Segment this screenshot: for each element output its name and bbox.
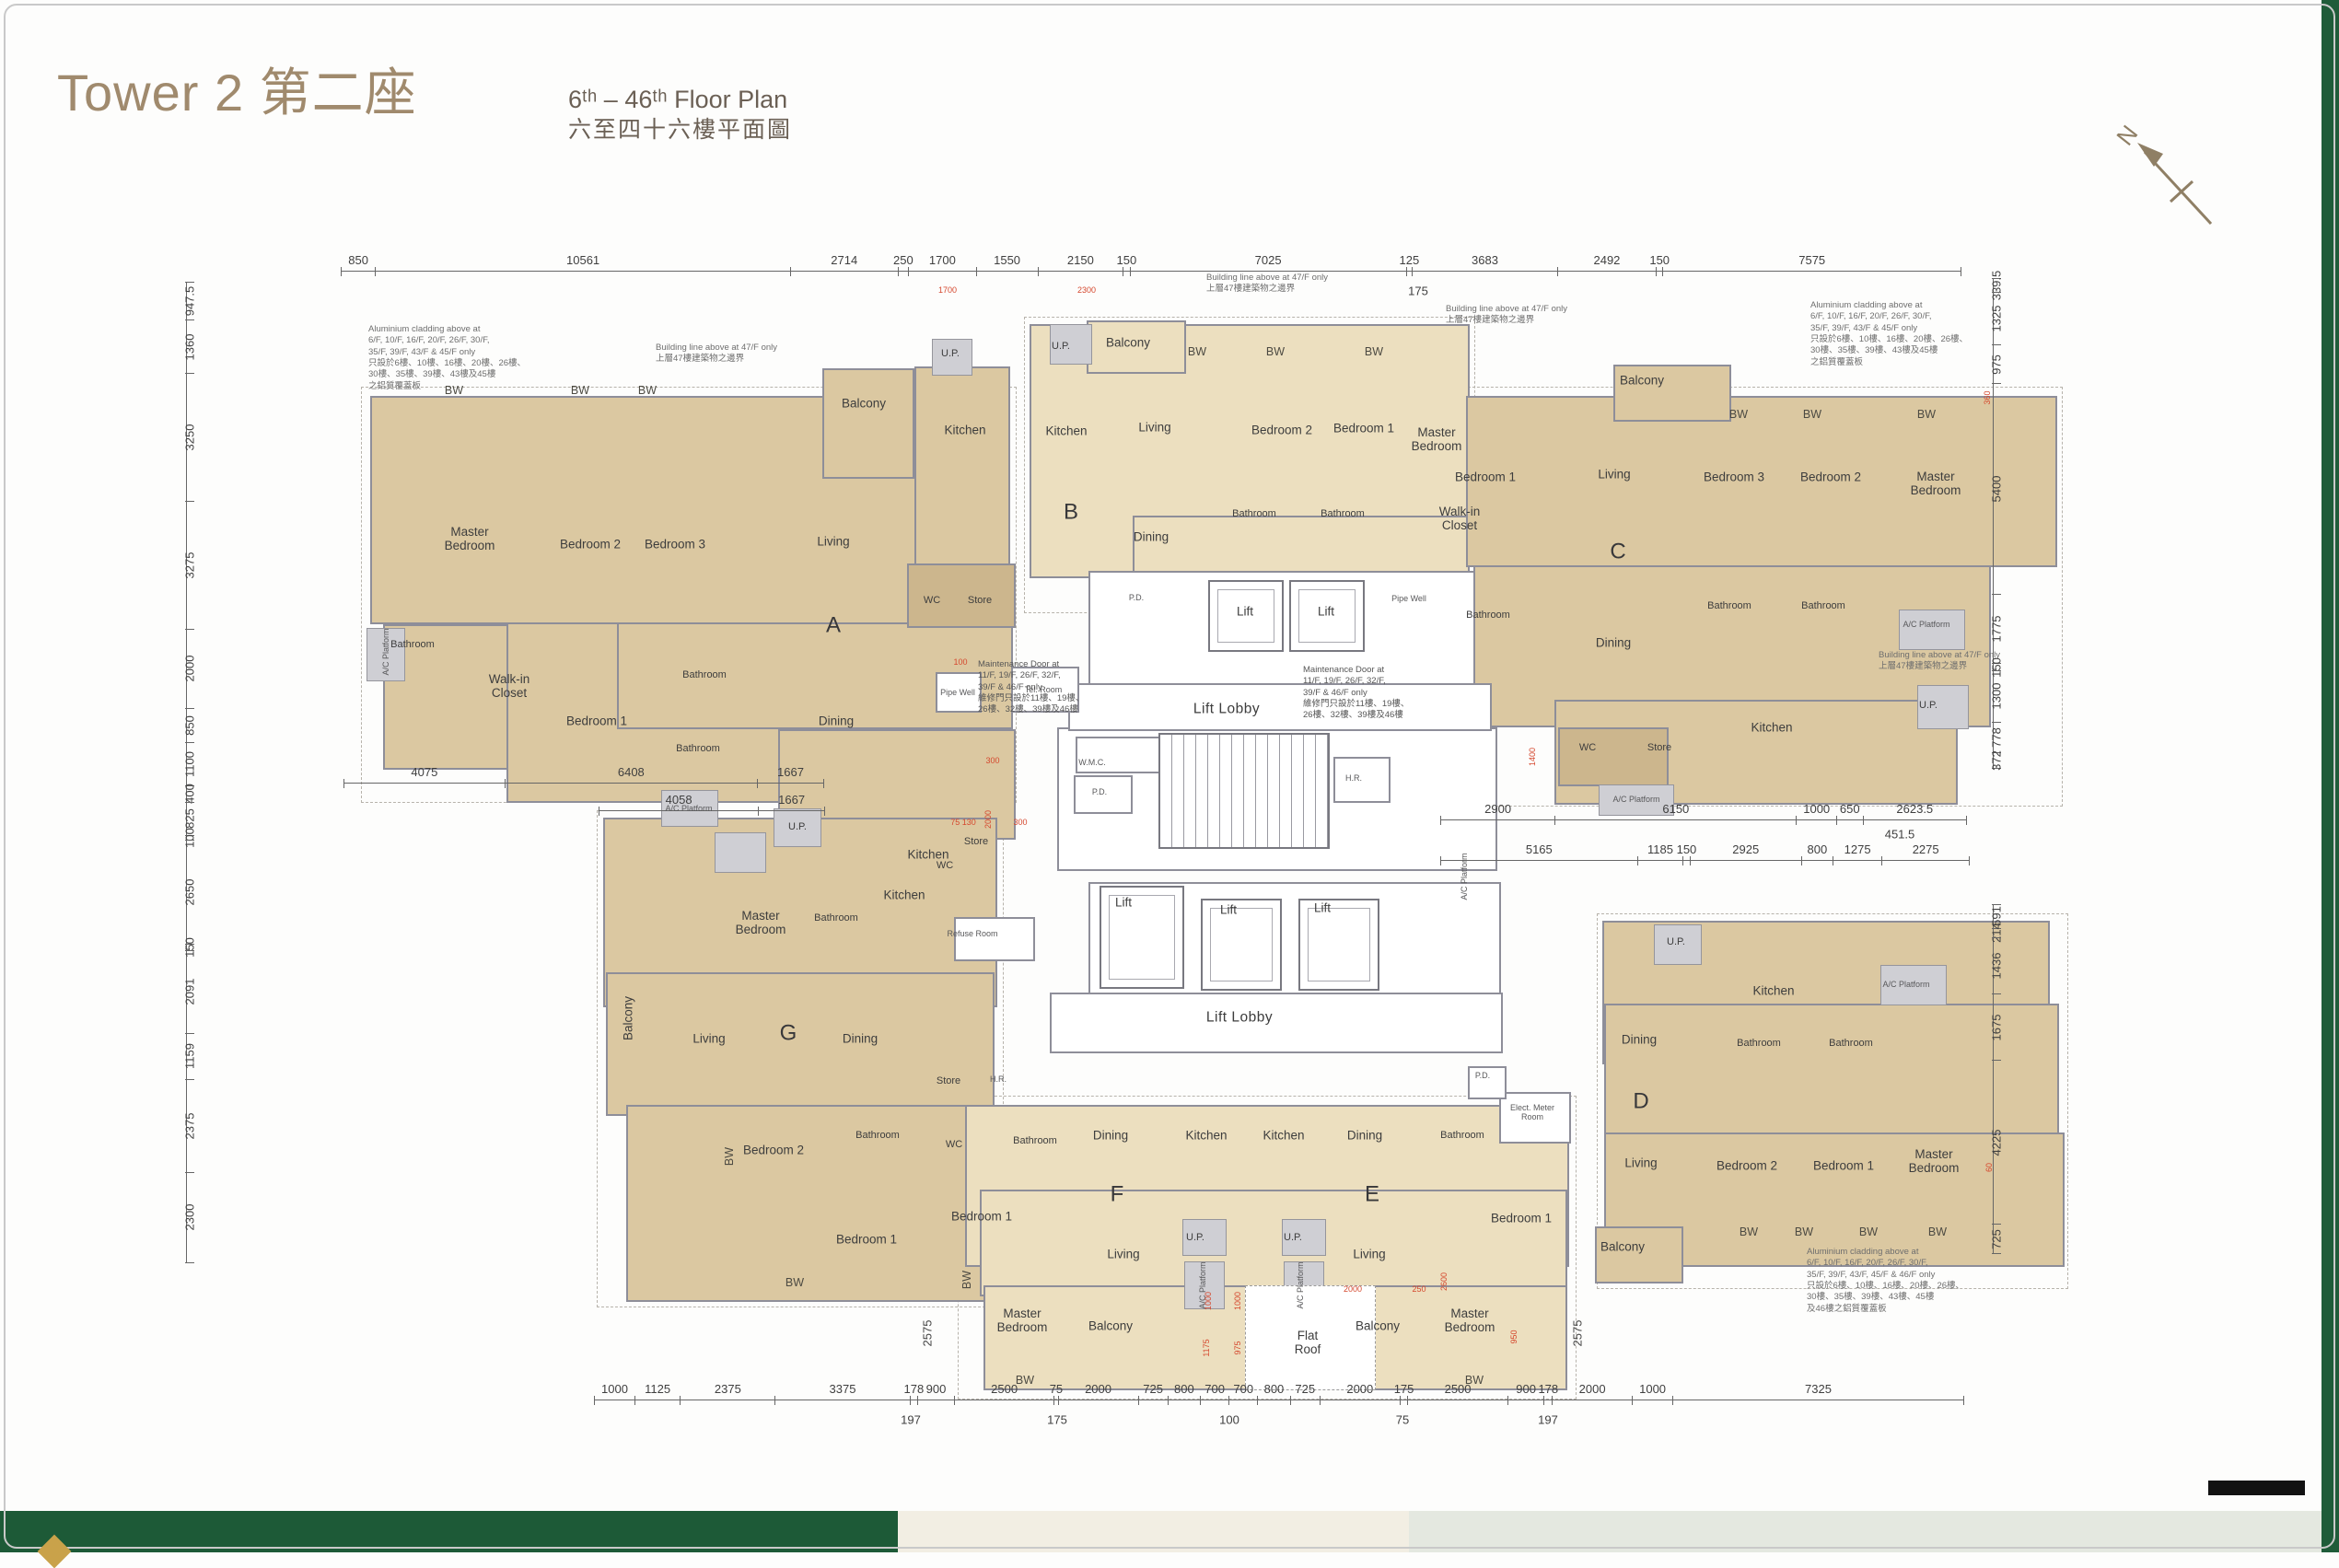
unit-f-label: F [1111,1183,1124,1208]
unit-a-label: A [826,614,841,639]
bedroom-1-label: Bedroom 1 [1491,1211,1552,1225]
note-line: 上層47樓建築物之邊界 [656,354,777,365]
dimension-label: 3683 [1472,253,1498,267]
dimension-segment: 850 [185,708,194,742]
bedroom-2-label: Bedroom 2 [743,1143,804,1156]
note-line: 只設於6樓、10樓、16樓、20樓、26樓、 [1810,334,1968,345]
bay-window-label: BW [1803,408,1821,421]
dimension-label: 2650 [182,878,196,905]
dimension-segment: 2623.5 [1863,816,1966,825]
maintenance-door-note: Maintenance Door at11/F, 19/F, 26/F, 32/… [978,659,1084,716]
balcony-label: Balcony [842,396,886,410]
bay-window-label: BW [1465,1374,1484,1387]
store-label: Store [968,595,992,606]
dimension-label: 5400 [1989,475,2003,502]
balcony-label: Balcony [1620,373,1664,387]
wc-label: WC [937,860,953,871]
dimension-label: 1700 [929,253,956,267]
dining-label: Dining [843,1031,878,1045]
dimension-chain-top: 8501056127142501700155021501507025125368… [341,254,1961,276]
dimension-label: 975 [1989,354,2003,375]
dimension-label: 1185 [1647,842,1673,856]
aluminium-cladding-note: Aluminium cladding above at6/F, 10/F, 16… [1807,1247,1964,1315]
u-p-label: U.P. [941,348,960,359]
aluminium-cladding-note: Aluminium cladding above at6/F, 10/F, 16… [1810,300,1968,368]
red-dimension-label: 975 [1233,1341,1242,1354]
living-label: Living [692,1031,725,1045]
dining-label: Dining [1622,1032,1657,1046]
dimension-label: 2575 [921,1320,935,1347]
dimension-label: 75 [1050,1382,1063,1396]
lift-label: Lift [1115,895,1132,909]
master-bedroom-label: Master Bedroom [1445,1307,1495,1334]
bedroom-3-label: Bedroom 3 [645,537,705,551]
elect-meter-room-label: Elect. Meter Room [1510,1103,1554,1121]
note-line: 35/F, 39/F, 43/F & 45/F only [1810,323,1968,334]
balcony-label: Balcony [1356,1318,1400,1332]
dimension-segment: 2375 [185,1079,194,1172]
service-room [954,917,1035,961]
note-line: Maintenance Door at [978,659,1084,670]
dimension-label: 800 [1174,1382,1194,1396]
dimension-label: 800 [1264,1382,1285,1396]
red-dimension-label: 1400 [1528,748,1537,766]
dimension-segment: 3683 [1412,267,1557,276]
bay-window-label: BW [723,1147,736,1166]
dimension-label: 175 [1047,1413,1067,1427]
dimension-label: 900 [1516,1382,1536,1396]
dimension-label: 197 [1538,1413,1558,1427]
dimension-segment: 2150 [1038,267,1123,276]
dimension-segment: 800 [1168,1396,1200,1405]
master-bedroom-label: Master Bedroom [736,909,786,936]
dimension-label: 2000 [1085,1382,1111,1396]
bay-window-label: BW [1928,1225,1947,1238]
dimension-label: 6408 [618,765,645,779]
balcony-label: Balcony [1088,1318,1133,1332]
u-p-label: U.P. [1186,1232,1204,1243]
dimension-label: 1436 [1989,953,2003,980]
dimension-label: 1125 [645,1382,670,1396]
dimension-label: 372 [1989,750,2003,771]
dimension-segment: 150 [1682,856,1689,865]
bathroom-label: Bathroom [1013,1135,1057,1146]
u-p-label: U.P. [1667,936,1685,947]
dimension-segment: 339.5 [1992,278,2001,292]
dimension-segment: 10561 [375,267,790,276]
living-label: Living [817,534,849,548]
dimension-label: 700 [1204,1382,1225,1396]
bathroom-label: Bathroom [390,639,435,650]
dimension-segment: 372 [1992,752,2001,768]
dimension-label: 650 [1840,802,1860,816]
p-d-label: P.D. [1092,787,1107,796]
note-line: Building line above at 47/F only [1879,650,2000,661]
unit-d-label: D [1633,1090,1648,1115]
dimension-segment: 2000 [185,629,194,707]
service-room [1333,757,1391,803]
dimension-segment: 3250 [185,373,194,500]
note-line: 39/F & 46/F only [978,682,1084,693]
dimension-label: 947.5 [182,286,196,317]
bedroom-1-label: Bedroom 1 [1813,1158,1874,1172]
a-c-platform-label: A/C Platform [1296,1261,1305,1308]
red-dimension-label: 1000 [1204,1292,1213,1310]
dimension-segment: 800 [1257,1396,1289,1405]
dimension-label: 725 [1295,1382,1315,1396]
dimension-label: 4075 [411,765,437,779]
footer-bar-right [1409,1511,2339,1552]
dining-label: Dining [1093,1128,1128,1142]
bathroom-label: Bathroom [1737,1038,1781,1049]
dimension-segment: 7575 [1662,267,1961,276]
dimension-segment: 1325 [1992,292,2001,344]
bedroom-1-label: Bedroom 1 [1333,421,1394,435]
dimension-label: 2150 [1067,253,1094,267]
building-line-note: Building line above at 47/F only上層47樓建築物… [656,343,777,366]
balcony-label: Balcony [1600,1239,1645,1253]
bathroom-label: Bathroom [814,912,858,923]
dimension-segment: 1300 [1992,670,2001,722]
dimension-segment: 1360 [185,319,194,373]
lift-label: Lift [1318,604,1334,618]
dimension-segment: 175 [1400,1396,1408,1405]
p-d-label: P.D. [1475,1071,1490,1080]
kitchen-label: Kitchen [944,423,985,436]
dimension-segment: 2500 [954,1396,1053,1405]
dimension-segment: 975 [1992,344,2001,383]
bay-window-label: BW [1917,408,1936,421]
dimension-segment: 2275 [1881,856,1969,865]
a-c-platform-label: A/C Platform [1903,620,1949,629]
dimension-tick [1961,267,1961,276]
dimension-label: 2000 [182,656,196,682]
a-c-platform-label: A/C Platform [1612,795,1659,804]
dimension-label: 1360 [182,333,196,360]
note-line: 11/F, 19/F, 26/F, 32/F, [978,670,1084,681]
bedroom-1-label: Bedroom 1 [1455,470,1516,483]
dining-label: Dining [1347,1128,1382,1142]
store-area [1558,727,1669,786]
dimension-label: 1159 [182,1043,196,1069]
bathroom-label: Bathroom [1440,1130,1484,1141]
dimension-label: 1300 [1989,683,2003,710]
dimension-label: 2575 [1571,1320,1585,1347]
note-line: 30樓、35樓、39樓、43樓、45樓 [1807,1292,1964,1303]
dimension-label: 1667 [778,793,805,807]
note-line: 35/F, 39/F, 43/F & 45/F only [368,347,526,358]
note-line: Building line above at 47/F only [656,343,777,354]
dimension-segment: 3275 [185,501,194,629]
dimension-segment: 1185 [1637,856,1683,865]
dimension-segment: 1000 [1632,1396,1672,1405]
dimension-label: 778 [1989,727,2003,748]
bay-window-label: BW [1740,1225,1758,1238]
dimension-segment: 4075 [343,779,505,788]
bay-window-label: BW [1795,1225,1813,1238]
dimension-segment: 2714 [790,267,898,276]
dimension-label: 1775 [1989,616,2003,643]
note-line: Building line above at 47/F only [1446,304,1567,315]
dimension-segment: 400 [185,785,194,802]
dimension-label: 1675 [1989,1014,2003,1040]
dimension-segment: 2091 [185,950,194,1032]
dimension-label: 1000 [1639,1382,1666,1396]
bay-window-label: BW [1188,345,1206,358]
dimension-label: 4225 [1989,1129,2003,1156]
scale-bar [2208,1481,2305,1495]
platform-area [1899,610,1965,650]
dimension-segment: 150 [1656,267,1662,276]
unit-c-label: C [1610,540,1625,565]
lift-shaft [1201,899,1282,991]
bathroom-label: Bathroom [1232,508,1276,519]
dimension-label: 2900 [1484,802,1511,816]
master-bedroom-label: Master Bedroom [445,525,495,552]
living-label: Living [1624,1156,1657,1169]
bedroom-2-label: Bedroom 2 [1716,1158,1777,1172]
living-label: Living [1107,1247,1139,1260]
dimension-tick [824,807,825,816]
note-line: 及46樓之鋁質覆蓋板 [1807,1304,1964,1315]
store-label: Store [964,836,988,847]
dimension-label: 178 [903,1382,924,1396]
note-line: 6/F, 10/F, 16/F, 20/F, 26/F, 30/F, [368,335,526,346]
note-line: 6/F, 10/F, 16/F, 20/F, 26/F, 30/F, [1807,1258,1964,1269]
dimension-segment: 2000 [1552,1396,1632,1405]
lift-lobby-label: Lift Lobby [1206,1009,1273,1025]
dimension-chain-right-upper: 339.51325975540017751501300778372 [1982,278,2004,769]
dimension-segment: 250 [898,267,909,276]
lift-shaft [1100,886,1184,989]
lift-lobby-label: Lift Lobby [1193,701,1260,716]
note-line: Maintenance Door at [1303,665,1409,676]
red-dimension-label: 1000 [1233,1292,1242,1310]
dimension-segment: 1700 [908,267,975,276]
dimension-label: 1550 [994,253,1020,267]
kitchen-label: Kitchen [1263,1128,1304,1142]
a-c-platform-label: A/C Platform [665,804,712,813]
lift-label: Lift [1220,902,1237,916]
dimension-segment: 1667 [757,779,823,788]
dimension-chain-mid-right-2: 51651185150292580012752275 [1440,843,1970,865]
dimension-segment: 725 [1138,1396,1168,1405]
dimension-label: 1100 [182,751,196,777]
dimension-label: 2623.5 [1896,802,1933,816]
footer-bar-middle [898,1511,1409,1552]
note-line: 26樓、32樓、39樓及46樓 [1303,710,1409,721]
dimension-label: 7325 [1805,1382,1832,1396]
dimension-label: 3275 [182,552,196,578]
dimension-segment: 1550 [976,267,1038,276]
note-line: Building line above at 47/F only [1206,273,1328,284]
dimension-label: 825 [182,808,196,829]
note-line: 30樓、35樓、39樓、43樓及45樓 [368,369,526,380]
maintenance-door-note: Maintenance Door at11/F, 19/F, 26/F, 32/… [1303,665,1409,722]
dining-label: Dining [819,714,854,727]
dimension-label: 1325 [1989,306,2003,332]
dimension-label: 100 [1219,1413,1239,1427]
unit-area [1595,1226,1683,1283]
dimension-label: 10561 [566,253,599,267]
red-dimension-label: 2300 [1077,285,1096,295]
dimension-segment: 2492 [1557,267,1656,276]
dimension-segment: 900 [917,1396,954,1405]
dimension-segment: 1667 [758,807,824,816]
bathroom-label: Bathroom [855,1130,900,1141]
red-dimension-label: 2000 [983,810,993,829]
red-dimension-label: 100 [953,657,967,667]
note-line: 只設於6樓、10樓、16樓、20樓、26樓、 [1807,1281,1964,1292]
bedroom-1-label: Bedroom 1 [566,714,627,727]
unit-area [822,368,914,479]
dimension-label: 2375 [715,1382,741,1396]
dimension-label: 2492 [1593,253,1620,267]
walk-in-closet-label: Walk-in Closet [1439,505,1481,532]
note-line: 維修門只設於11樓、19樓、 [978,693,1084,704]
lift-label: Lift [1314,900,1331,914]
master-bedroom-label: Master Bedroom [1911,470,1961,497]
flat-roof-label: Flat Roof [1295,1329,1321,1356]
note-line: Aluminium cladding above at [368,324,526,335]
dimension-segment: 1100 [185,742,194,785]
footer-bar-left [0,1511,898,1552]
staircase [1158,733,1330,849]
note-line: 6/F, 10/F, 16/F, 20/F, 26/F, 30/F, [1810,311,1968,322]
red-dimension-label: 950 [1509,1330,1519,1343]
dining-label: Dining [1596,635,1631,649]
dimension-chain-mid-right-1: 2900615010006502623.5 [1440,803,1967,825]
dimension-segment: 214 [1992,928,2001,937]
dimension-segment: 178 [1543,1396,1552,1405]
dimension-segment: 725 [1290,1396,1320,1405]
bathroom-label: Bathroom [682,669,727,680]
note-line: 上層47樓建築物之邊界 [1879,661,2000,672]
dimension-segment: 850 [341,267,375,276]
aluminium-cladding-note: Aluminium cladding above at6/F, 10/F, 16… [368,324,526,392]
dimension-label: 125 [1400,253,1420,267]
bathroom-label: Bathroom [1466,610,1510,621]
kitchen-label: Kitchen [1185,1128,1227,1142]
red-dimension-label: 360 [1983,390,1992,404]
u-p-label: U.P. [1052,341,1070,352]
dimension-label: 2000 [1346,1382,1373,1396]
dimension-label: 150 [1649,253,1670,267]
walk-in-closet-label: Walk-in Closet [489,672,530,700]
dimension-label: 2500 [991,1382,1018,1396]
u-p-label: U.P. [788,821,807,832]
living-label: Living [1353,1247,1385,1260]
bathroom-label: Bathroom [1707,600,1751,611]
note-line: 39/F & 46/F only [1303,688,1409,699]
dimension-chain-mid-left-1: 407564081667 [343,766,824,788]
dimension-segment: 2900 [1440,816,1554,825]
dimension-label: 150 [1677,842,1697,856]
dimension-segment: 700 [1200,1396,1228,1405]
dimension-label: 3375 [830,1382,856,1396]
wc-label: WC [946,1139,962,1150]
dimension-label: 2275 [1913,842,1939,856]
unit-e-label: E [1365,1183,1379,1208]
note-line: 11/F, 19/F, 26/F, 32/F, [1303,676,1409,687]
floor-plan-drawing: BWBWBWMaster BedroomBedroom 2Bedroom 3Li… [0,0,2339,1552]
unit-area [606,972,995,1116]
kitchen-label: Kitchen [1751,720,1792,734]
living-label: Living [1138,420,1170,434]
dimension-chain-bottom: 1000112523753375178900250075200072580070… [594,1383,1964,1405]
dimension-tick [823,779,824,788]
note-line: 上層47樓建築物之邊界 [1206,284,1328,295]
bay-window-label: BW [785,1276,804,1289]
dimension-segment: 2000 [1058,1396,1138,1405]
dimension-segment: 2300 [185,1172,194,1262]
dimension-segment: 900 [1507,1396,1544,1405]
note-line: 30樓、35樓、39樓、43樓及45樓 [1810,345,1968,356]
dimension-label: 7025 [1255,253,1282,267]
red-dimension-label: 300 [985,756,999,765]
master-bedroom-label: Master Bedroom [1909,1147,1960,1175]
dimension-segment: 3375 [774,1396,909,1405]
dimension-label: 178 [1538,1382,1558,1396]
dimension-segment: 650 [1836,816,1863,825]
dimension-label: 2091 [182,979,196,1005]
dimension-label: 700 [1233,1382,1253,1396]
dimension-label: 3250 [182,424,196,451]
bay-window-label: BW [1016,1374,1034,1387]
dimension-segment: 5400 [1992,383,2001,593]
red-dimension-label: 2600 [1439,1272,1449,1291]
h-r-label: H.R. [990,1074,1007,1084]
dimension-segment: 1675 [1992,993,2001,1059]
dimension-segment: 2375 [680,1396,774,1405]
u-p-label: U.P. [1284,1232,1302,1243]
dimension-label: 451.5 [1885,828,1915,842]
bathroom-label: Bathroom [1829,1038,1873,1049]
red-dimension-label: 250 [1412,1284,1426,1294]
dimension-segment: 2000 [1320,1396,1400,1405]
dimension-segment: 1000 [1796,816,1835,825]
dimension-segment: 2925 [1690,856,1801,865]
note-line: 26樓、32樓、39樓及46樓 [978,704,1084,715]
red-dimension-label: 300 [1013,818,1027,827]
bathroom-label: Bathroom [1801,600,1845,611]
dimension-label: 1000 [1803,802,1830,816]
dimension-segment: 1159 [185,1033,194,1079]
dimension-segment: 6150 [1554,816,1796,825]
red-dimension-label: 2000 [1344,1284,1362,1294]
dimension-label: 1667 [777,765,804,779]
dimension-label: 150 [1116,253,1136,267]
a-c-platform-label: A/C Platform [1882,980,1929,989]
a-c-platform-label: A/C Platform [381,628,390,675]
bedroom-2-label: Bedroom 2 [1251,423,1312,436]
dimension-label: 900 [926,1382,947,1396]
dimension-label: 2714 [831,253,857,267]
dimension-label: 7575 [1798,253,1825,267]
dimension-segment: 7325 [1672,1396,1963,1405]
a-c-platform-label: A/C Platform [1460,853,1469,900]
bathroom-label: Bathroom [1321,508,1365,519]
kitchen-label: Kitchen [1045,424,1087,437]
bay-window-label: BW [1365,345,1383,358]
dimension-label: 175 [1408,285,1428,298]
bay-window-label: BW [1859,1225,1878,1238]
wc-label: WC [1579,742,1596,753]
dimension-segment: 1000 [594,1396,634,1405]
refuse-room-label: Refuse Room [947,929,997,938]
dimension-segment: 778 [1992,722,2001,753]
dimension-label: 800 [1808,842,1828,856]
